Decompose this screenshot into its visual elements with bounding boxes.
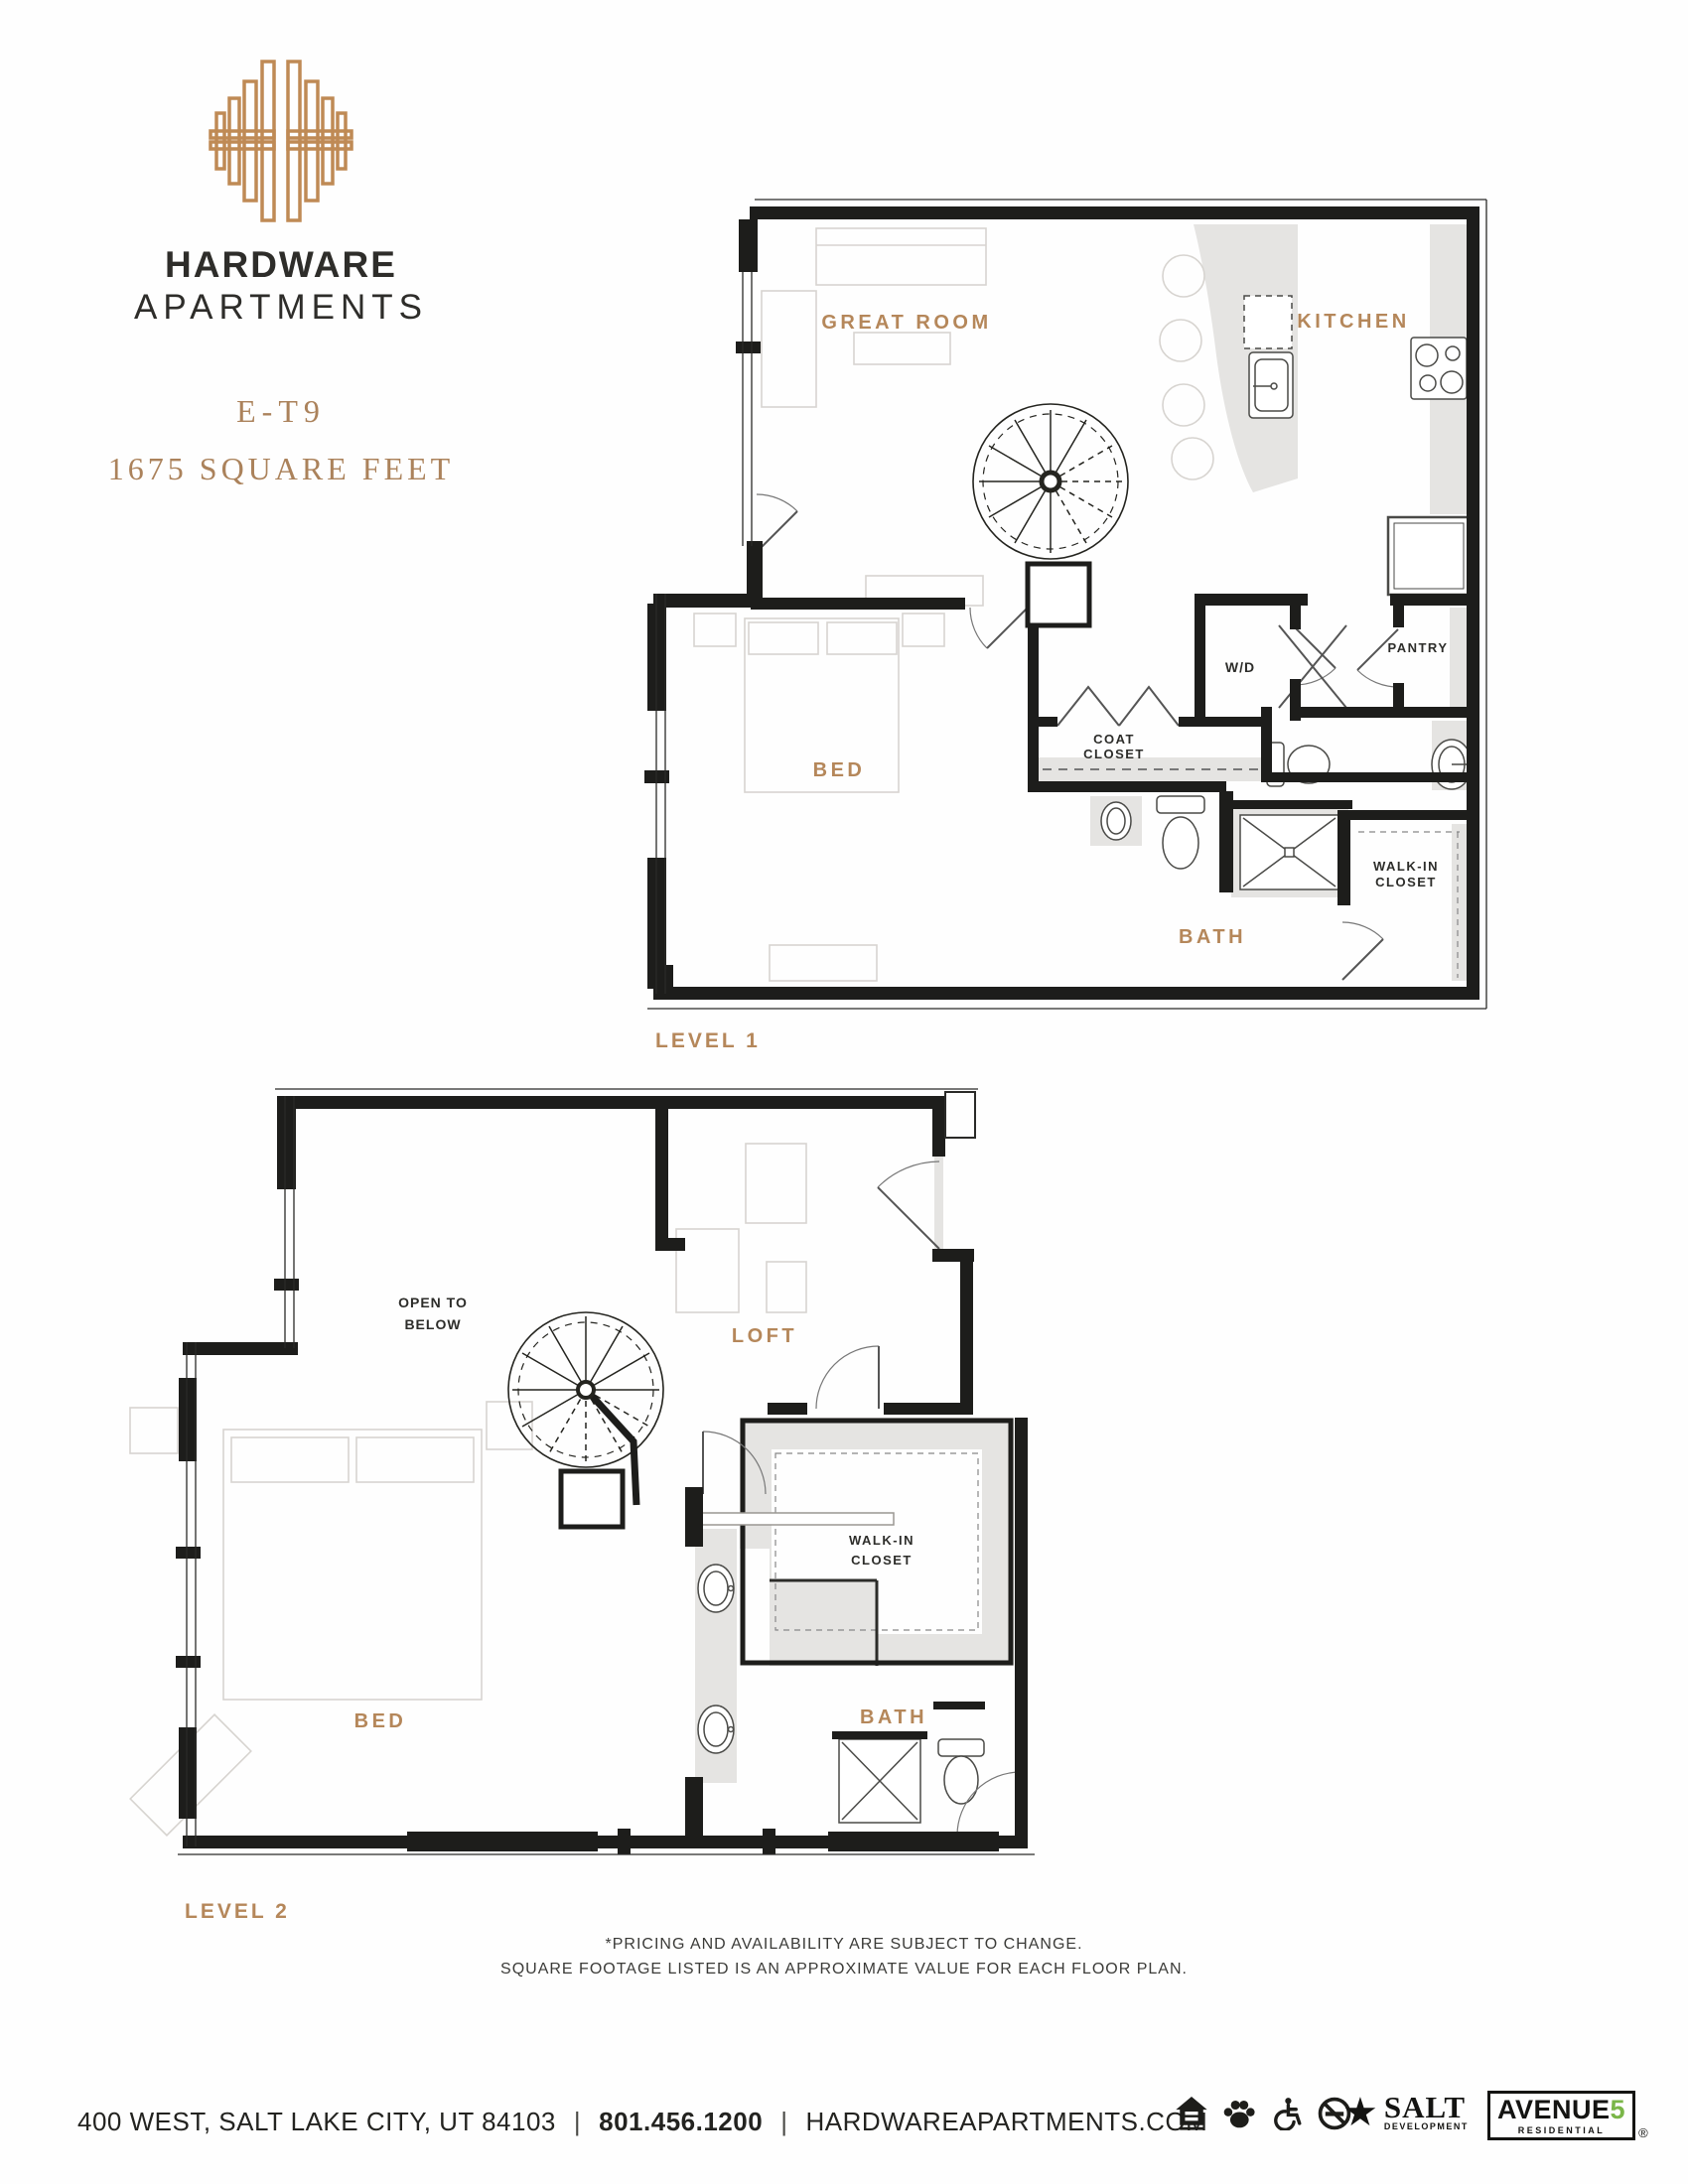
disclaimer: *PRICING AND AVAILABILITY ARE SUBJECT TO… [0, 1932, 1688, 1981]
accessible-icon [1270, 2097, 1304, 2130]
corner-step-detail [945, 1092, 975, 1138]
label-walkin1-line2: CLOSET [1375, 875, 1437, 889]
label-kitchen: KITCHEN [1297, 311, 1409, 333]
bath2-toilet-icon [938, 1739, 984, 1756]
label-bed-1: BED [813, 759, 866, 781]
walkin1-rods [1358, 832, 1460, 978]
label-walkin2-line2: CLOSET [851, 1553, 913, 1568]
vanity-counter [695, 1513, 894, 1525]
label-walkin1-line1: WALK-IN [1373, 859, 1439, 874]
level1-plan: GREAT ROOM KITCHEN BED BATH W/D PANTRY C… [644, 200, 1486, 1052]
label-open-to-below-1: OPEN TO [398, 1295, 468, 1310]
registered-mark: ® [1638, 2125, 1648, 2140]
footer-separator-1: | [574, 2107, 581, 2136]
avenue5-residential-logo: AVENUE5 RESIDENTIAL ® [1487, 2091, 1648, 2140]
label-bath-2: BATH [860, 1706, 927, 1728]
label-bath-1: BATH [1179, 926, 1246, 948]
salt-development-logo: ★ SALT DEVELOPMENT [1342, 2093, 1469, 2132]
label-wd: W/D [1225, 659, 1255, 675]
salt-logo-name: SALT [1384, 2094, 1469, 2121]
footer-phone[interactable]: 801.456.1200 [599, 2107, 763, 2136]
level2-fixtures [695, 1513, 984, 1823]
equal-housing-icon [1175, 2097, 1208, 2130]
footer-contact: 400 WEST, SALT LAKE CITY, UT 84103|801.4… [77, 2107, 1207, 2137]
disclaimer-line2: SQUARE FOOTAGE LISTED IS AN APPROXIMATE … [0, 1957, 1688, 1981]
label-open-to-below-2: BELOW [404, 1316, 461, 1332]
avenue5-name: AVENUE [1497, 2095, 1611, 2124]
dishwasher-icon [1244, 296, 1292, 348]
label-walkin2-line1: WALK-IN [849, 1533, 914, 1548]
floor-plan-page: HARDWARE APARTMENTS E-T9 1675 SQUARE FEE… [0, 0, 1688, 2184]
level2-plan: OPEN TO BELOW LOFT WALK-IN CLOSET BED BA… [130, 1089, 1035, 1923]
label-coat-closet-2: CLOSET [1083, 747, 1145, 761]
avenue5-box: AVENUE5 RESIDENTIAL [1487, 2091, 1635, 2140]
label-coat-closet-1: COAT [1093, 732, 1135, 747]
footer-amenity-icons [1175, 2097, 1351, 2130]
stair-landing-level1 [1028, 564, 1089, 625]
salt-logo-sub: DEVELOPMENT [1384, 2121, 1469, 2131]
bath1-toilet-icon [1157, 796, 1204, 813]
label-bed-2: BED [354, 1710, 407, 1732]
footer-website[interactable]: HARDWAREAPARTMENTS.COM [805, 2107, 1207, 2136]
avenue5-sub: RESIDENTIAL [1497, 2125, 1625, 2135]
label-pantry: PANTRY [1388, 640, 1449, 655]
pet-friendly-icon [1222, 2097, 1256, 2130]
label-loft: LOFT [732, 1325, 797, 1347]
footer-separator-2: | [780, 2107, 787, 2136]
stair-landing-level2 [561, 1471, 623, 1527]
disclaimer-line1: *PRICING AND AVAILABILITY ARE SUBJECT TO… [0, 1932, 1688, 1957]
salt-star-icon: ★ [1342, 2093, 1378, 2132]
avenue5-five: 5 [1611, 2095, 1626, 2124]
caption-level2: LEVEL 2 [185, 1900, 290, 1923]
floor-plan-drawings: GREAT ROOM KITCHEN BED BATH W/D PANTRY C… [0, 0, 1688, 2184]
spiral-stair-level1 [973, 404, 1128, 559]
label-great-room: GREAT ROOM [821, 312, 991, 334]
caption-level1: LEVEL 1 [655, 1029, 761, 1052]
footer-address: 400 WEST, SALT LAKE CITY, UT 84103 [77, 2107, 556, 2136]
